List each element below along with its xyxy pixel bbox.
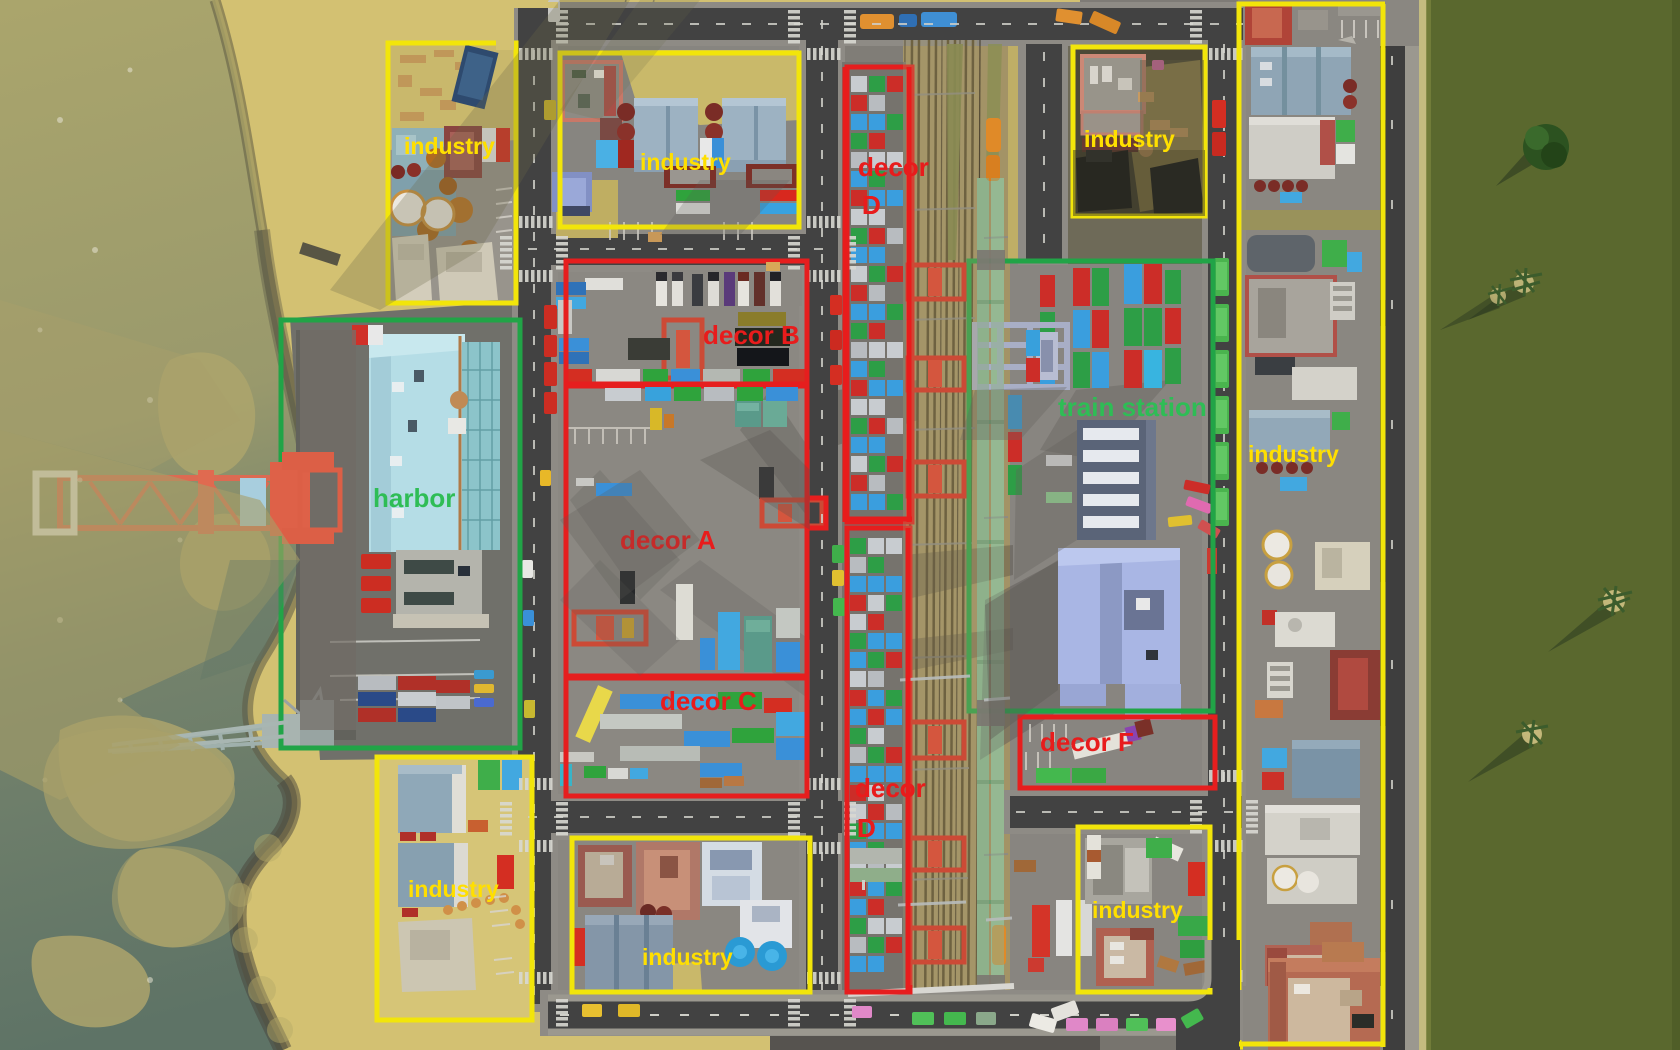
- svg-text:industry: industry: [1092, 897, 1183, 923]
- svg-text:decor F: decor F: [1040, 727, 1134, 757]
- svg-text:decor: decor: [855, 773, 926, 803]
- svg-text:industry: industry: [1248, 441, 1339, 467]
- svg-text:train station: train station: [1058, 392, 1207, 422]
- svg-text:industry: industry: [1084, 126, 1175, 152]
- svg-text:decor: decor: [858, 152, 929, 182]
- svg-text:industry: industry: [404, 133, 495, 159]
- svg-text:harbor: harbor: [373, 483, 455, 513]
- svg-text:industry: industry: [642, 944, 733, 970]
- svg-text:D: D: [857, 813, 876, 843]
- svg-text:D: D: [862, 190, 881, 220]
- svg-text:industry: industry: [640, 149, 731, 175]
- svg-text:decor C: decor C: [660, 686, 757, 716]
- svg-text:decor B: decor B: [703, 320, 800, 350]
- svg-text:industry: industry: [408, 876, 499, 902]
